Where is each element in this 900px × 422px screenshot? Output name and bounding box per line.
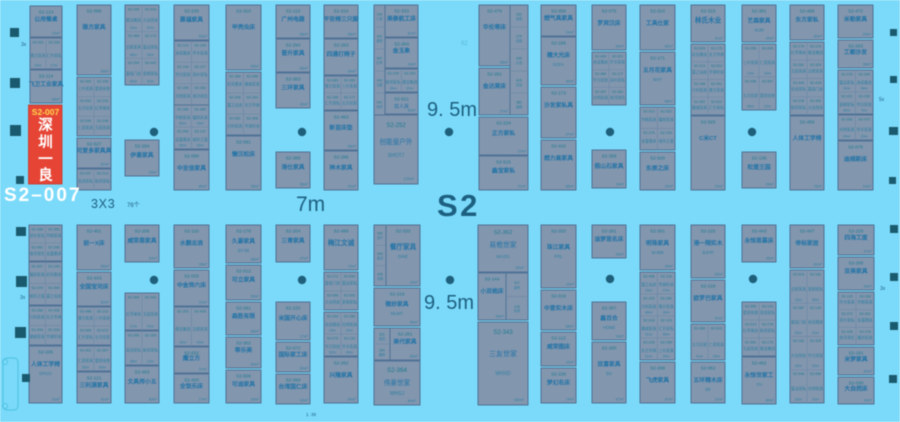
- svg-text:S2-498: S2-498: [334, 229, 349, 234]
- svg-text:S2-451: S2-451: [87, 229, 102, 234]
- svg-text:S2-200: S2-200: [327, 315, 339, 319]
- svg-text:S2-469: S2-469: [128, 296, 140, 300]
- svg-text:梦幻名床: 梦幻名床: [547, 379, 570, 387]
- svg-text:S2-185: S2-185: [327, 96, 339, 100]
- svg-text:YH: YH: [756, 382, 762, 387]
- svg-text:喜临门床: 喜临门床: [126, 71, 141, 76]
- svg-text:S2-329: S2-329: [810, 63, 822, 67]
- svg-text:50m²: 50m²: [300, 367, 309, 371]
- svg-text:S2-469: S2-469: [128, 34, 140, 38]
- svg-text:S2-109: S2-109: [194, 44, 206, 48]
- svg-text:60m²: 60m²: [408, 109, 417, 113]
- svg-text:29m²: 29m²: [149, 171, 158, 175]
- svg-text:五月花家: 五月花家: [95, 334, 110, 339]
- svg-text:PRL: PRL: [554, 254, 563, 259]
- svg-text:29m²: 29m²: [251, 398, 260, 402]
- svg-text:84m²: 84m²: [348, 398, 357, 402]
- svg-text:S2-283: S2-283: [612, 90, 624, 94]
- svg-text:爱舒床垫: 爱舒床垫: [95, 358, 110, 363]
- svg-text:7m: 7m: [296, 193, 325, 216]
- svg-text:S2-447: S2-447: [800, 229, 815, 234]
- svg-text:97m²: 97m²: [566, 133, 575, 137]
- svg-text:40m²: 40m²: [197, 341, 204, 345]
- svg-text:13m²: 13m²: [147, 360, 154, 364]
- svg-text:S2-090: S2-090: [184, 154, 199, 159]
- svg-text:S2-420: S2-420: [184, 378, 199, 383]
- svg-text:永恒世家工: 永恒世家工: [744, 371, 774, 379]
- svg-text:光明家具: 光明家具: [808, 386, 823, 391]
- svg-text:雅方家具: 雅方家具: [709, 87, 724, 92]
- svg-text:伊曼家具: 伊曼家具: [129, 151, 153, 159]
- svg-text:DINE: DINE: [398, 254, 408, 259]
- svg-text:前一X床: 前一X床: [83, 239, 104, 247]
- svg-text:喜临门床: 喜临门床: [808, 87, 823, 92]
- svg-text:S2-016: S2-016: [145, 8, 157, 12]
- svg-text:BY-58: BY-58: [238, 248, 250, 253]
- svg-text:55m²: 55m²: [82, 366, 89, 370]
- svg-text:鑫百合: 鑫百合: [599, 314, 618, 322]
- svg-text:吉斯家具: 吉斯家具: [126, 44, 141, 49]
- svg-text:双人床: 双人床: [394, 103, 409, 110]
- svg-text:S2-281: S2-281: [398, 332, 413, 337]
- svg-text:S2-258: S2-258: [31, 309, 43, 313]
- svg-text:S2-443: S2-443: [87, 276, 102, 281]
- svg-text:M-988: M-988: [652, 250, 665, 255]
- svg-text:华丰家具: 华丰家具: [342, 344, 357, 349]
- svg-text:东方华典: 东方华典: [641, 348, 656, 353]
- svg-text:S2-082: S2-082: [841, 118, 853, 122]
- svg-text:联邦家私: 联邦家私: [386, 80, 401, 85]
- svg-text:光明家具: 光明家具: [593, 95, 608, 100]
- svg-text:林氏木业: 林氏木业: [695, 16, 722, 25]
- svg-text:永恒思慕床: 永恒思慕床: [744, 237, 774, 245]
- svg-text:S2-019: S2-019: [793, 273, 805, 277]
- svg-text:迪姆斯床: 迪姆斯床: [844, 155, 867, 163]
- svg-text:华丰家具: 华丰家具: [193, 51, 208, 56]
- svg-text:皇朝家私: 皇朝家私: [143, 71, 158, 76]
- svg-text:S2-367: S2-367: [602, 306, 617, 311]
- svg-text:S2-079: S2-079: [848, 145, 863, 150]
- svg-text:S2-279: S2-279: [643, 131, 655, 135]
- svg-text:95m²: 95m²: [864, 285, 873, 289]
- svg-text:58m²: 58m²: [300, 33, 309, 37]
- svg-text:好风景床: 好风景床: [46, 272, 61, 277]
- svg-text:玉庭家具: 玉庭家具: [95, 125, 110, 130]
- svg-text:华伦蒂床: 华伦蒂床: [483, 23, 506, 31]
- svg-text:S2-458: S2-458: [643, 275, 655, 279]
- svg-text:S2-082: S2-082: [31, 246, 43, 250]
- svg-text:27m²: 27m²: [500, 110, 509, 114]
- svg-text:富运家私: 富运家私: [839, 80, 854, 85]
- svg-text:S2-291: S2-291: [32, 41, 44, 45]
- svg-text:S2-119: S2-119: [661, 319, 672, 323]
- svg-text:华源轩床: 华源轩床: [46, 334, 61, 339]
- svg-text:S2-294: S2-294: [135, 144, 150, 149]
- svg-text:64m²: 64m²: [251, 363, 260, 367]
- svg-text:S2-219: S2-219: [390, 292, 405, 297]
- svg-text:MAZG: MAZG: [496, 254, 510, 259]
- svg-text:S2-286: S2-286: [334, 155, 349, 160]
- svg-text:S2-530: S2-530: [344, 275, 356, 279]
- svg-text:S2-507: S2-507: [31, 265, 43, 269]
- svg-text:30m²: 30m²: [147, 80, 154, 84]
- svg-text:双叶家私: 双叶家私: [839, 317, 854, 322]
- svg-text:森胜有限: 森胜有限: [232, 312, 255, 320]
- svg-text:S2-265: S2-265: [849, 261, 864, 266]
- svg-text:吉斯: 吉斯: [516, 16, 523, 21]
- svg-text:S2-443: S2-443: [752, 229, 767, 234]
- svg-text:良: 良: [38, 166, 53, 184]
- svg-text:55m²: 55m²: [179, 144, 186, 148]
- svg-text:57m²: 57m²: [616, 398, 625, 402]
- svg-text:耀邦家具: 耀邦家具: [659, 117, 674, 122]
- svg-text:双叶家私: 双叶家私: [30, 233, 45, 238]
- svg-text:富运家私: 富运家私: [143, 44, 158, 49]
- svg-text:城市之窗: 城市之窗: [659, 138, 674, 143]
- svg-text:342: 342: [377, 35, 383, 39]
- svg-text:30m²: 30m²: [300, 103, 309, 107]
- svg-text:244: 244: [377, 79, 383, 83]
- svg-text:S2-256: S2-256: [745, 80, 757, 84]
- svg-text:全饭乐床: 全饭乐床: [179, 382, 203, 390]
- svg-text:创能量户外: 创能量户外: [380, 137, 413, 146]
- svg-text:60m²: 60m²: [516, 266, 525, 270]
- svg-text:S2-262: S2-262: [334, 361, 349, 366]
- svg-text:工都沙发: 工都沙发: [844, 48, 867, 56]
- svg-text:S2-319: S2-319: [643, 297, 655, 301]
- svg-text:S2-079: S2-079: [327, 337, 339, 341]
- svg-text:S2-204: S2-204: [286, 229, 301, 234]
- svg-text:3X3: 3X3: [91, 197, 115, 211]
- svg-text:汇升家私: 汇升家私: [78, 334, 93, 339]
- svg-text:魔立方: 魔立方: [182, 354, 201, 362]
- svg-text:人体工学椅: 人体工学椅: [792, 134, 822, 142]
- svg-text:S2-035: S2-035: [849, 381, 864, 386]
- svg-text:S2-215: S2-215: [810, 45, 822, 49]
- svg-text:爱舒: 爱舒: [376, 38, 383, 43]
- svg-text:东方华典: 东方华典: [709, 52, 724, 57]
- svg-text:45m²: 45m²: [766, 257, 775, 261]
- svg-text:华日家居: 华日家居: [808, 353, 823, 358]
- svg-text:金富雅床: 金富雅床: [641, 138, 656, 143]
- svg-text:21m²: 21m²: [518, 185, 527, 189]
- svg-text:S2-113: S2-113: [286, 9, 301, 14]
- svg-text:S2-046: S2-046: [793, 372, 805, 376]
- svg-text:60m²: 60m²: [410, 355, 419, 359]
- svg-text:三友世家: 三友世家: [489, 349, 517, 358]
- svg-text:46m²: 46m²: [861, 87, 868, 91]
- svg-text:53m²: 53m²: [147, 53, 154, 57]
- svg-text:红苹果床: 红苹果床: [791, 50, 806, 55]
- svg-text:三叶家具: 三叶家具: [743, 60, 758, 65]
- svg-text:S2-263: S2-263: [848, 44, 863, 49]
- svg-text:兴利家具: 兴利家具: [30, 315, 45, 320]
- svg-text:好风景床: 好风景床: [692, 52, 707, 57]
- svg-text:梅江文诚: 梅江文诚: [328, 238, 355, 247]
- svg-text:86m²: 86m²: [566, 185, 575, 189]
- svg-text:BJHR: BJHR: [703, 250, 714, 255]
- svg-text:62m²: 62m²: [101, 301, 110, 305]
- svg-text:55m²: 55m²: [101, 265, 110, 269]
- svg-text:珠江家具: 珠江家具: [547, 243, 570, 251]
- svg-text:SHOT7: SHOT7: [388, 153, 405, 159]
- svg-text:S2-294: S2-294: [128, 61, 140, 65]
- svg-text:S2-232: S2-232: [286, 306, 301, 311]
- svg-text:20m²: 20m²: [147, 325, 154, 329]
- svg-text:17m²: 17m²: [199, 398, 208, 402]
- svg-text:米国开心床: 米国开心床: [278, 314, 308, 322]
- svg-text:26m²: 26m²: [663, 355, 670, 359]
- svg-text:WHXD: WHXD: [495, 371, 511, 377]
- svg-text:耀邦家具: 耀邦家具: [857, 335, 872, 340]
- svg-text:华鹤家具: 华鹤家具: [641, 117, 656, 122]
- svg-text:S2-092: S2-092: [344, 294, 356, 298]
- svg-text:华鹤家具: 华鹤家具: [175, 115, 190, 120]
- svg-text:53m²: 53m²: [715, 273, 724, 277]
- svg-text:97m²: 97m²: [715, 317, 724, 321]
- svg-text:穗宝集团: 穗宝集团: [402, 80, 417, 85]
- svg-text:穗宝集团: 穗宝集团: [760, 346, 775, 351]
- svg-text:好风: 好风: [514, 308, 521, 313]
- svg-text:S2-295: S2-295: [48, 246, 60, 250]
- svg-text:三叶家具: 三叶家具: [659, 348, 674, 353]
- svg-text:46m²: 46m²: [130, 53, 137, 57]
- svg-text:新苗床垫: 新苗床垫: [329, 123, 352, 131]
- svg-text:24m²: 24m²: [715, 185, 724, 189]
- svg-text:S2-070: S2-070: [858, 118, 870, 122]
- svg-text:S2-362: S2-362: [494, 230, 513, 236]
- svg-text:52m²: 52m²: [329, 351, 336, 355]
- svg-text:S2-522: S2-522: [660, 110, 672, 114]
- svg-text:S2-143: S2-143: [762, 305, 774, 309]
- svg-text:华丰家具: 华丰家具: [857, 127, 872, 132]
- svg-text:91m²: 91m²: [715, 37, 724, 41]
- svg-text:58m²: 58m²: [348, 145, 357, 149]
- svg-text:S2-114: S2-114: [39, 74, 54, 79]
- svg-text:S2-426: S2-426: [841, 330, 853, 334]
- svg-text:24m²: 24m²: [34, 64, 41, 68]
- svg-text:S2-055: S2-055: [745, 305, 757, 309]
- svg-text:全国宝河床: 全国宝河床: [79, 282, 109, 290]
- svg-text:S2-105: S2-105: [97, 80, 109, 84]
- svg-text:16m²: 16m²: [199, 263, 208, 267]
- svg-text:沙发家私具: 沙发家私具: [544, 101, 573, 109]
- svg-text:公用餐桌: 公用餐桌: [34, 15, 57, 23]
- svg-text:45m²: 45m²: [747, 105, 754, 109]
- svg-text:爱舒床垫: 爱舒床垫: [743, 310, 758, 315]
- svg-text:中意实木床: 中意实木床: [544, 304, 573, 312]
- svg-text:S2-494: S2-494: [48, 286, 60, 290]
- svg-text:S2-381: S2-381: [752, 9, 767, 14]
- svg-text:S2–007: S2–007: [4, 185, 82, 206]
- svg-text:S2-013: S2-013: [643, 110, 655, 114]
- svg-text:80m²: 80m²: [766, 399, 775, 403]
- svg-text:48m²: 48m²: [645, 311, 652, 315]
- svg-text:双虎家私: 双虎家私: [760, 310, 775, 315]
- svg-text:S2-316: S2-316: [643, 341, 655, 345]
- svg-text:18m²: 18m²: [616, 335, 625, 339]
- svg-text:87m²: 87m²: [665, 398, 674, 402]
- svg-text:金富: 金富: [379, 336, 385, 341]
- svg-text:S2-099: S2-099: [87, 9, 102, 14]
- svg-text:联邦家私: 联邦家私: [760, 328, 775, 333]
- svg-text:S2-341: S2-341: [711, 82, 723, 86]
- svg-text:华源轩床: 华源轩床: [709, 70, 724, 75]
- svg-text:S2-018: S2-018: [643, 319, 655, 323]
- svg-text:S2-422: S2-422: [80, 349, 92, 353]
- svg-text:60m²: 60m²: [99, 366, 106, 370]
- svg-text:19m²: 19m²: [566, 361, 575, 365]
- svg-text:五月花家: 五月花家: [743, 93, 758, 98]
- svg-text:279: 279: [516, 35, 522, 39]
- svg-text:S2-121: S2-121: [87, 376, 102, 381]
- svg-text:19m²: 19m²: [179, 341, 186, 345]
- svg-text:91m²: 91m²: [348, 185, 357, 189]
- svg-text:S2-306: S2-306: [246, 117, 258, 121]
- svg-text:S2-267: S2-267: [595, 90, 607, 94]
- svg-text:S2-527: S2-527: [87, 142, 102, 147]
- svg-text:双叶家私: 双叶家私: [610, 77, 625, 82]
- svg-text:四海工度: 四海工度: [844, 234, 867, 242]
- svg-text:S2-281: S2-281: [487, 72, 502, 77]
- svg-text:S2-442: S2-442: [145, 61, 157, 65]
- svg-text:五月花家: 五月花家: [342, 100, 357, 105]
- svg-text:S2-176: S2-176: [859, 330, 871, 334]
- svg-text:S2-283: S2-283: [334, 43, 349, 48]
- svg-text:爱舒床垫: 爱舒床垫: [760, 93, 775, 98]
- svg-text:S2-090: S2-090: [762, 47, 774, 51]
- svg-text:S2-225: S2-225: [701, 229, 716, 234]
- svg-text:富之岛床: 富之岛床: [46, 293, 61, 298]
- svg-text:S2-075: S2-075: [602, 9, 617, 14]
- svg-text:S2-383: S2-383: [286, 77, 301, 82]
- svg-text:S2-138: S2-138: [752, 156, 767, 161]
- svg-text:74m²: 74m²: [566, 398, 575, 402]
- svg-text:金富雅床: 金富雅床: [175, 137, 190, 142]
- svg-text:S2-025: S2-025: [184, 274, 199, 279]
- svg-text:S2-389: S2-389: [286, 156, 301, 161]
- svg-text:23m²: 23m²: [861, 135, 868, 139]
- svg-text:金富雅床: 金富雅床: [46, 251, 61, 256]
- svg-text:伟豪世家: 伟豪世家: [384, 378, 411, 387]
- svg-text:9. 5m: 9. 5m: [424, 292, 474, 314]
- svg-text:穗大光床: 穗大光床: [547, 51, 570, 59]
- svg-text:042: 042: [377, 101, 383, 105]
- svg-text:亚美家具: 亚美家具: [844, 267, 867, 275]
- svg-text:S2-439: S2-439: [128, 8, 140, 12]
- svg-text:S2-238: S2-238: [48, 41, 60, 45]
- svg-text:S2-178: S2-178: [236, 229, 251, 234]
- svg-text:331: 331: [379, 333, 385, 337]
- svg-text:汇升家私: 汇升家私: [325, 100, 340, 105]
- svg-text:东原之床: 东原之床: [646, 164, 669, 172]
- svg-text:5x: 5x: [879, 97, 885, 103]
- svg-text:050: 050: [377, 232, 383, 236]
- svg-text:S2-177: S2-177: [344, 96, 356, 100]
- svg-text:美代家具: 美代家具: [393, 337, 416, 345]
- svg-text:80m²: 80m²: [814, 35, 823, 39]
- svg-text:雅方家具: 雅方家具: [659, 304, 674, 309]
- svg-text:S2-302: S2-302: [236, 341, 251, 346]
- svg-text:95m²: 95m²: [410, 321, 419, 325]
- svg-text:S2-021: S2-021: [612, 55, 624, 59]
- svg-text:23m²: 23m²: [665, 185, 674, 189]
- svg-text:S2-260: S2-260: [344, 79, 356, 83]
- svg-text:11m²: 11m²: [812, 331, 819, 335]
- svg-text:9m²: 9m²: [861, 109, 867, 113]
- svg-text:S2-065: S2-065: [80, 329, 92, 333]
- svg-text:30m²: 30m²: [843, 87, 850, 91]
- svg-text:华鹤: 华鹤: [377, 276, 383, 281]
- svg-text:S2-127: S2-127: [612, 72, 624, 76]
- svg-text:米梦家具: 米梦家具: [843, 355, 867, 363]
- svg-text:S2-213: S2-213: [97, 172, 109, 176]
- svg-text:仁豪家具: 仁豪家具: [78, 125, 93, 130]
- svg-text:红苹: 红苹: [376, 60, 383, 65]
- svg-text:S2-068: S2-068: [286, 378, 301, 383]
- svg-text:51m²: 51m²: [645, 333, 652, 337]
- svg-text:30m²: 30m²: [665, 265, 674, 269]
- svg-text:S2-488: S2-488: [80, 310, 92, 314]
- svg-text:南洋胡氏: 南洋胡氏: [193, 93, 208, 98]
- svg-text:双叶家私: 双叶家私: [193, 72, 208, 77]
- svg-text:水鹏志浪: 水鹏志浪: [180, 239, 203, 247]
- svg-text:22m²: 22m²: [52, 398, 61, 402]
- svg-text:华丰家具: 华丰家具: [610, 60, 625, 65]
- svg-text:威荣图床: 威荣图床: [547, 342, 570, 350]
- svg-text:25m²: 25m²: [713, 355, 720, 359]
- svg-text:雅方家具: 雅方家具: [30, 53, 45, 58]
- svg-text:S2-010: S2-010: [711, 64, 723, 68]
- svg-text:富运: 富运: [516, 82, 523, 87]
- svg-text:港仕家具: 港仕家具: [281, 163, 304, 171]
- svg-text:S2-248: S2-248: [97, 119, 109, 123]
- svg-text:53m²: 53m²: [199, 35, 208, 39]
- svg-text:S2-124: S2-124: [39, 10, 54, 15]
- svg-text:华源轩床: 华源轩床: [659, 282, 674, 287]
- svg-text:华日家居: 华日家居: [857, 102, 872, 107]
- svg-text:95m²: 95m²: [496, 315, 505, 319]
- svg-text:久豪家具: 久豪家具: [232, 237, 255, 245]
- svg-text:S2-144: S2-144: [485, 277, 500, 282]
- svg-text:S2-253: S2-253: [48, 228, 60, 232]
- svg-text:31m²: 31m²: [812, 398, 819, 402]
- svg-text:飞卫工业家具: 飞卫工业家具: [29, 80, 64, 88]
- svg-text:汇升家私: 汇升家私: [709, 105, 724, 110]
- svg-text:33m²: 33m²: [197, 144, 204, 148]
- svg-text:S2-115: S2-115: [841, 295, 852, 299]
- svg-text:32m²: 32m²: [795, 398, 802, 402]
- svg-text:S2-173: S2-173: [551, 91, 566, 96]
- svg-text:松堡王国: 松堡王国: [747, 163, 770, 171]
- svg-text:BS: BS: [606, 371, 612, 376]
- svg-text:34m²: 34m²: [346, 329, 353, 333]
- svg-text:S2-012: S2-012: [236, 269, 251, 274]
- svg-text:38m²: 38m²: [863, 63, 872, 67]
- svg-text:S2-145: S2-145: [48, 265, 60, 269]
- svg-text:S2-280: S2-280: [660, 297, 672, 301]
- svg-text:爱舒床垫: 爱舒床垫: [95, 86, 110, 91]
- svg-text:迪诺雅床: 迪诺雅床: [175, 51, 190, 56]
- svg-text:S2-255: S2-255: [745, 47, 757, 51]
- svg-text:S2-278: S2-278: [762, 323, 774, 327]
- svg-text:76m²: 76m²: [814, 185, 823, 189]
- svg-text:32m²: 32m²: [812, 364, 819, 368]
- svg-text:S2-179: S2-179: [793, 45, 805, 49]
- svg-text:43m²: 43m²: [197, 122, 204, 126]
- svg-text:S2-392: S2-392: [810, 99, 822, 103]
- svg-text:17m²: 17m²: [130, 325, 137, 329]
